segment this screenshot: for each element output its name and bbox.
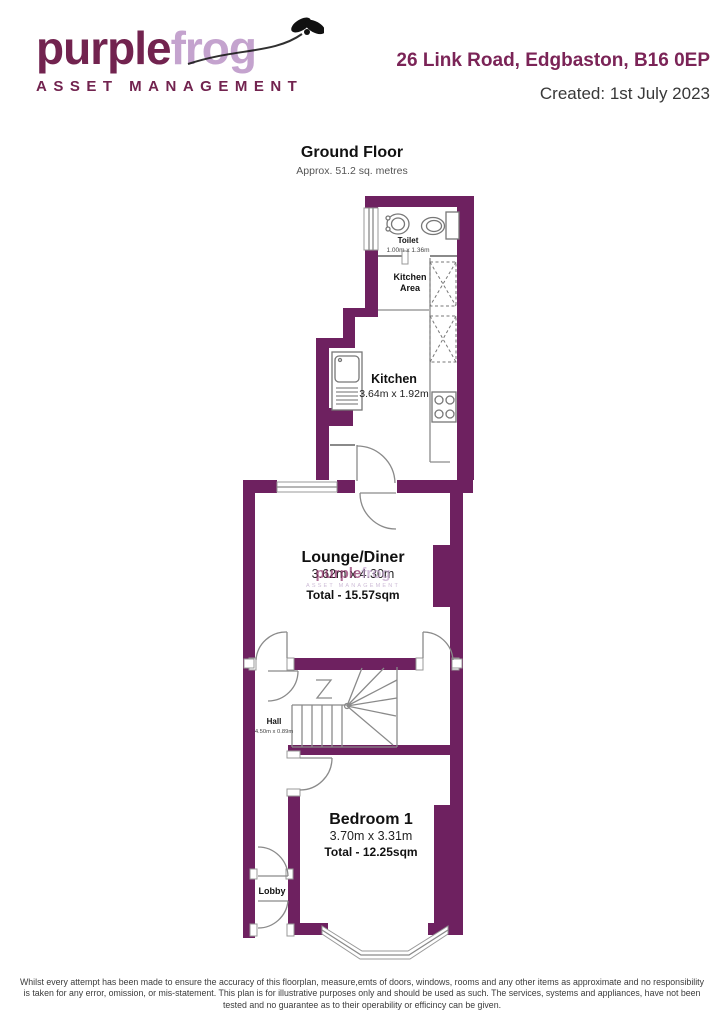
bedroom-dims: 3.70m x 3.31m xyxy=(330,829,413,843)
lobby-label: Lobby xyxy=(259,886,286,896)
basin-icon xyxy=(386,214,409,234)
hob-icon xyxy=(432,392,456,422)
bedroom-label: Bedroom 1 xyxy=(329,811,413,828)
window-icon xyxy=(277,482,337,492)
door-arc-icon xyxy=(256,632,287,660)
kitchen-dims: 3.64m x 1.92m xyxy=(359,388,429,400)
floorplan-page: purplefrog ASSET MANAGEMENT 26 Link Road… xyxy=(0,0,724,1024)
svg-text:purplefrog: purplefrog xyxy=(315,565,390,582)
watermark-word-frog: frog xyxy=(361,565,390,582)
wc-toilet-icon xyxy=(422,212,460,239)
toilet-dims: 1.00m x 1.36m xyxy=(387,247,430,254)
watermark-word-purple: purple xyxy=(315,565,361,582)
appliance-box-icon xyxy=(430,316,456,362)
kitchen-area-label-2: Area xyxy=(400,283,421,293)
toilet-label: Toilet xyxy=(398,236,419,245)
door-arc-icon xyxy=(360,493,396,529)
lounge-total: Total - 15.57sqm xyxy=(306,588,399,602)
door-arc-icon xyxy=(258,847,288,876)
stairs-icon xyxy=(268,667,397,747)
room-lounge-diner: Lounge/Diner 3.62m x 4.30m purplefrog AS… xyxy=(244,482,462,670)
door-arc-icon xyxy=(423,632,453,660)
stair-break-mark xyxy=(316,680,332,698)
door-arc-icon xyxy=(300,758,332,790)
kitchen-area-label-1: Kitchen xyxy=(393,272,426,282)
hall-dims: 4.50m x 0.89m xyxy=(255,729,294,735)
room-toilet: Toilet 1.00m x 1.36m xyxy=(364,208,459,264)
window-icon xyxy=(364,208,378,250)
door-arc-icon xyxy=(330,445,395,483)
room-lobby: Lobby xyxy=(250,847,294,936)
door-arc-icon xyxy=(268,671,298,701)
hall-label: Hall xyxy=(267,717,282,726)
footer-disclaimer: Whilst every attempt has been made to en… xyxy=(17,977,707,1011)
door-arc-icon xyxy=(258,901,288,928)
floorplan-svg: Toilet 1.00m x 1.36m Kitchen Area xyxy=(0,0,724,1024)
room-kitchen-area: Kitchen Area xyxy=(378,258,456,462)
kitchen-sink-icon xyxy=(332,352,362,410)
bedroom-total: Total - 12.25sqm xyxy=(324,845,417,859)
appliance-box-icon xyxy=(430,262,456,306)
kitchen-label: Kitchen xyxy=(371,372,417,386)
lounge-label: Lounge/Diner xyxy=(301,549,404,566)
watermark-logo: purplefrog ASSET MANAGEMENT xyxy=(306,565,400,589)
room-hall: Hall 4.50m x 0.89m xyxy=(255,717,294,735)
